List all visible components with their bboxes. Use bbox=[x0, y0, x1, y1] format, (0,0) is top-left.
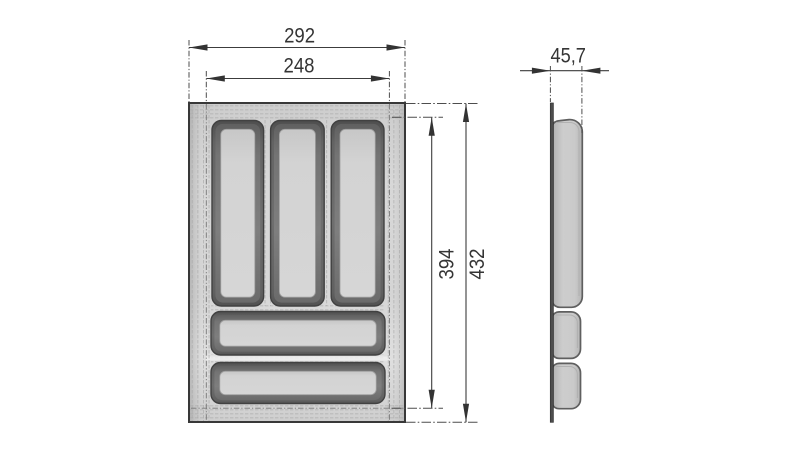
svg-text:432: 432 bbox=[466, 249, 489, 280]
svg-text:248: 248 bbox=[284, 55, 315, 78]
svg-text:45,7: 45,7 bbox=[550, 45, 586, 68]
svg-text:292: 292 bbox=[284, 25, 315, 48]
svg-text:394: 394 bbox=[435, 248, 458, 279]
